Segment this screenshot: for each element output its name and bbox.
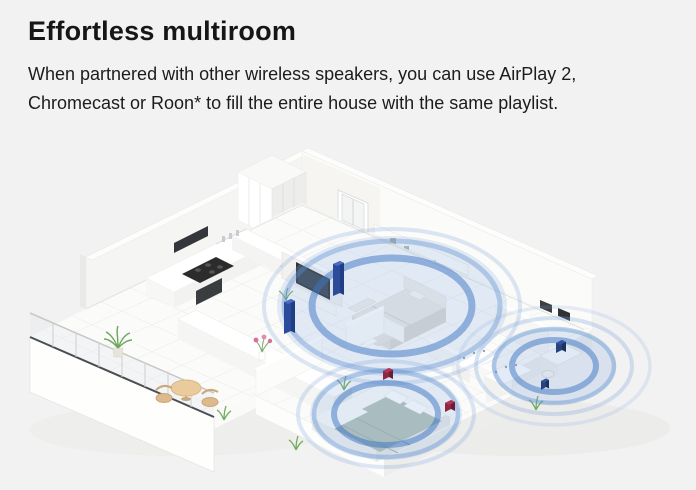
section-copy: Effortless multiroom When partnered with… <box>28 16 576 118</box>
floorstanding-speaker-right-icon <box>333 261 344 296</box>
section-body: When partnered with other wireless speak… <box>28 60 576 118</box>
floorstanding-speaker-left-icon <box>284 299 295 334</box>
section-heading: Effortless multiroom <box>28 16 576 47</box>
multiroom-section: Effortless multiroom When partnered with… <box>0 0 696 490</box>
body-line-2: Chromecast or Roon* to fill the entire h… <box>28 89 576 118</box>
body-line-1: When partnered with other wireless speak… <box>28 60 576 89</box>
